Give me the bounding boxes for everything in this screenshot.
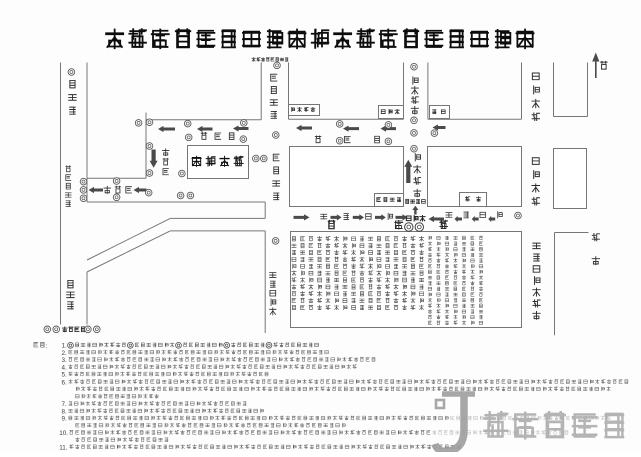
svg-text:10.: 10. xyxy=(59,430,68,437)
svg-text:9.: 9. xyxy=(62,416,68,423)
svg-text::: : xyxy=(46,343,48,350)
svg-text:5.: 5. xyxy=(62,372,68,379)
svg-text:7.: 7. xyxy=(62,401,68,408)
svg-text:3.: 3. xyxy=(62,357,68,364)
svg-text:11.: 11. xyxy=(59,445,68,452)
svg-text:1.: 1. xyxy=(62,343,68,350)
svg-text:2.: 2. xyxy=(62,350,68,357)
svg-text:4.: 4. xyxy=(62,364,68,371)
svg-text:6.: 6. xyxy=(62,379,68,386)
svg-text:8.: 8. xyxy=(62,409,68,416)
